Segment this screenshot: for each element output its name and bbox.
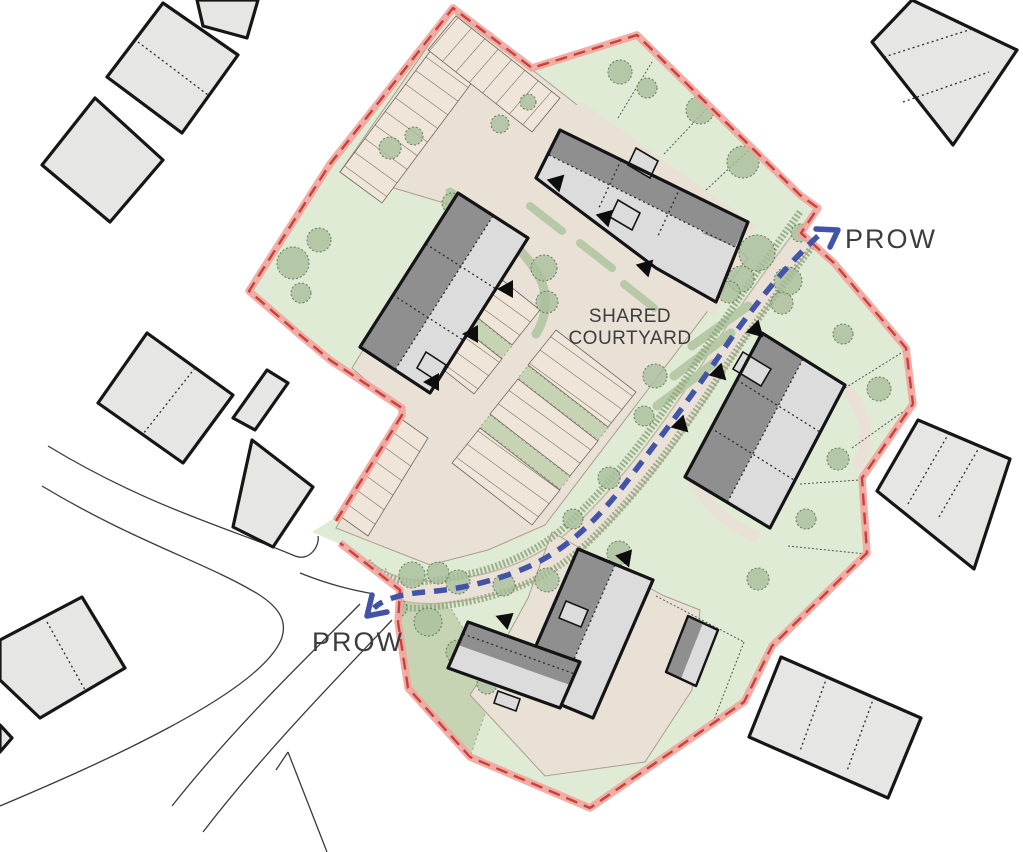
prow-label-lower: PROW [312, 627, 404, 657]
offsite-building [872, 0, 1017, 145]
offsite-building [0, 597, 125, 718]
offsite-building [0, 725, 12, 752]
site-plan-canvas: PROW PROW SHARED COURTYARD [0, 0, 1023, 852]
offsite-building [749, 657, 921, 798]
road-edge [288, 752, 327, 852]
road-edge [276, 752, 288, 770]
offsite-building [98, 333, 233, 463]
shared-courtyard-label-line2: COURTYARD [568, 328, 691, 349]
shared-courtyard-label-line1: SHARED [589, 306, 671, 327]
site-layout-plan: PROW PROW SHARED COURTYARD [0, 0, 1023, 852]
prow-label-upper: PROW [845, 224, 937, 254]
offsite-building [42, 98, 163, 222]
road-edge [300, 573, 374, 594]
offsite-building [233, 440, 313, 547]
offsite-building [233, 370, 288, 430]
